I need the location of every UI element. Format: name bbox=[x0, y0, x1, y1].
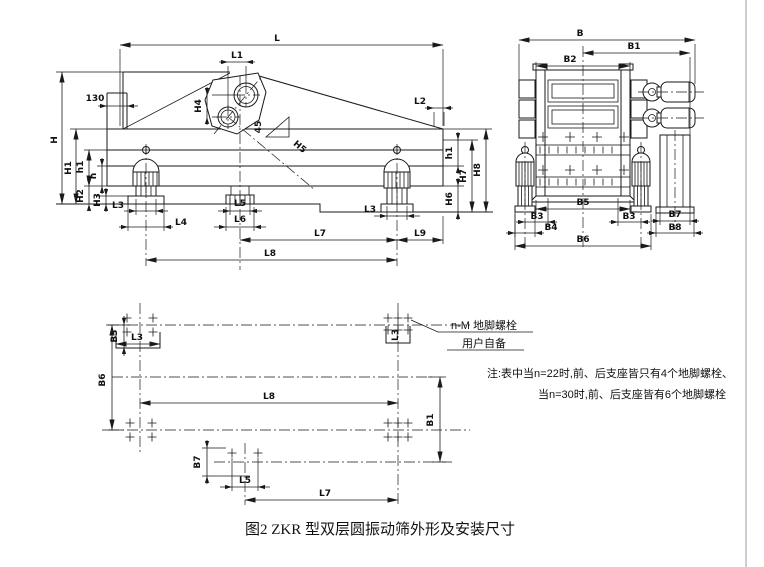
side-dimensions: L L1 130 L2 H H1 h1 h bbox=[50, 34, 492, 260]
note-line-2: 当n=30时,前、后支座皆有6个地脚螺栓 bbox=[538, 387, 726, 401]
dim-label-h: h bbox=[89, 173, 99, 179]
dim-label-L3-plan-right: L3 bbox=[391, 329, 401, 341]
figure-page: 45 H5 L L1 130 L2 H bbox=[0, 0, 764, 567]
dim-label-L5-plan: L5 bbox=[239, 476, 251, 486]
dim-label-H2: H2 bbox=[76, 189, 86, 203]
dim-label-B3-plan: B3 bbox=[110, 329, 120, 342]
dim-label-B3-left: B3 bbox=[530, 212, 543, 222]
callout-line-1: n-M 地脚螺栓 bbox=[451, 318, 517, 332]
anchor-bolt-callout: n-M 地脚螺栓 用户自备 bbox=[411, 318, 533, 350]
dim-label-B6-plan: B6 bbox=[98, 373, 108, 386]
dim-label-L8: L8 bbox=[264, 249, 276, 259]
dim-label-H5: H5 bbox=[291, 139, 308, 156]
dim-label-B4: B4 bbox=[544, 223, 557, 233]
callout-line-2: 用户自备 bbox=[462, 336, 506, 350]
dim-label-L3-left: L3 bbox=[112, 201, 124, 211]
vibrator-motors bbox=[643, 82, 695, 128]
vibrating-screen-drawing: 45 H5 L L1 130 L2 H bbox=[0, 0, 764, 567]
plan-view: L3 L3 B3 B6 L8 B1 B7 L5 bbox=[98, 303, 533, 505]
dim-label-h1-right: h1 bbox=[445, 147, 455, 160]
end-view: B B1 B2 B5 B3 B3 B4 B bbox=[506, 29, 704, 250]
dim-label-h1-left: h1 bbox=[76, 161, 86, 174]
dim-label-L3-plan-left: L3 bbox=[131, 333, 143, 343]
dim-label-H3: H3 bbox=[93, 193, 103, 207]
dim-label-L7: L7 bbox=[314, 229, 326, 239]
dim-label-L2: L2 bbox=[414, 97, 426, 107]
dim-label-L6: L6 bbox=[234, 215, 246, 225]
dim-label-B5: B5 bbox=[576, 198, 589, 208]
dim-label-L3-right: L3 bbox=[364, 205, 376, 215]
note-block: 注:表中当n=22时,前、后支座皆只有4个地脚螺栓、 当n=30时,前、后支座皆… bbox=[487, 366, 733, 401]
angle-label: 45 bbox=[254, 121, 264, 134]
dim-label-B1-end: B1 bbox=[627, 42, 640, 52]
dim-label-H4: H4 bbox=[194, 99, 204, 113]
dim-label-B3-right: B3 bbox=[622, 212, 635, 222]
side-view: 45 H5 L L1 130 L2 H bbox=[50, 34, 493, 270]
dim-label-B7-plan: B7 bbox=[193, 455, 203, 468]
dim-label-B2: B2 bbox=[563, 55, 576, 65]
plan-centerlines bbox=[108, 303, 470, 505]
dim-label-L7-plan: L7 bbox=[319, 489, 331, 499]
dim-label-L: L bbox=[274, 34, 280, 44]
dim-label-L5: L5 bbox=[234, 199, 246, 209]
dim-label-B6-end: B6 bbox=[576, 235, 589, 245]
dim-label-L1: L1 bbox=[231, 51, 243, 61]
dim-label-L9: L9 bbox=[414, 229, 426, 239]
dim-label-B: B bbox=[577, 29, 584, 39]
dim-label-H7: H7 bbox=[459, 169, 469, 183]
anchor-bolt-crosses bbox=[123, 314, 413, 458]
dim-label-H1: H1 bbox=[64, 161, 74, 175]
dim-label-H6: H6 bbox=[445, 192, 455, 206]
dim-label-B7-end: B7 bbox=[668, 210, 681, 220]
left-spring-support bbox=[128, 147, 164, 205]
plan-foot-brackets: L3 L3 bbox=[116, 326, 410, 348]
dim-label-B1-plan: B1 bbox=[426, 413, 436, 426]
dim-label-L8-plan: L8 bbox=[263, 392, 275, 402]
dim-label-H8: H8 bbox=[473, 163, 483, 177]
dim-label-H: H bbox=[50, 136, 60, 144]
figure-caption: 图2 ZKR 型双层圆振动筛外形及安装尺寸 bbox=[245, 521, 515, 538]
dim-label-B8: B8 bbox=[668, 223, 681, 233]
dim-label-130: 130 bbox=[86, 94, 105, 104]
note-line-1: 注:表中当n=22时,前、后支座皆只有4个地脚螺栓、 bbox=[487, 366, 733, 380]
dim-label-L4: L4 bbox=[175, 218, 187, 228]
